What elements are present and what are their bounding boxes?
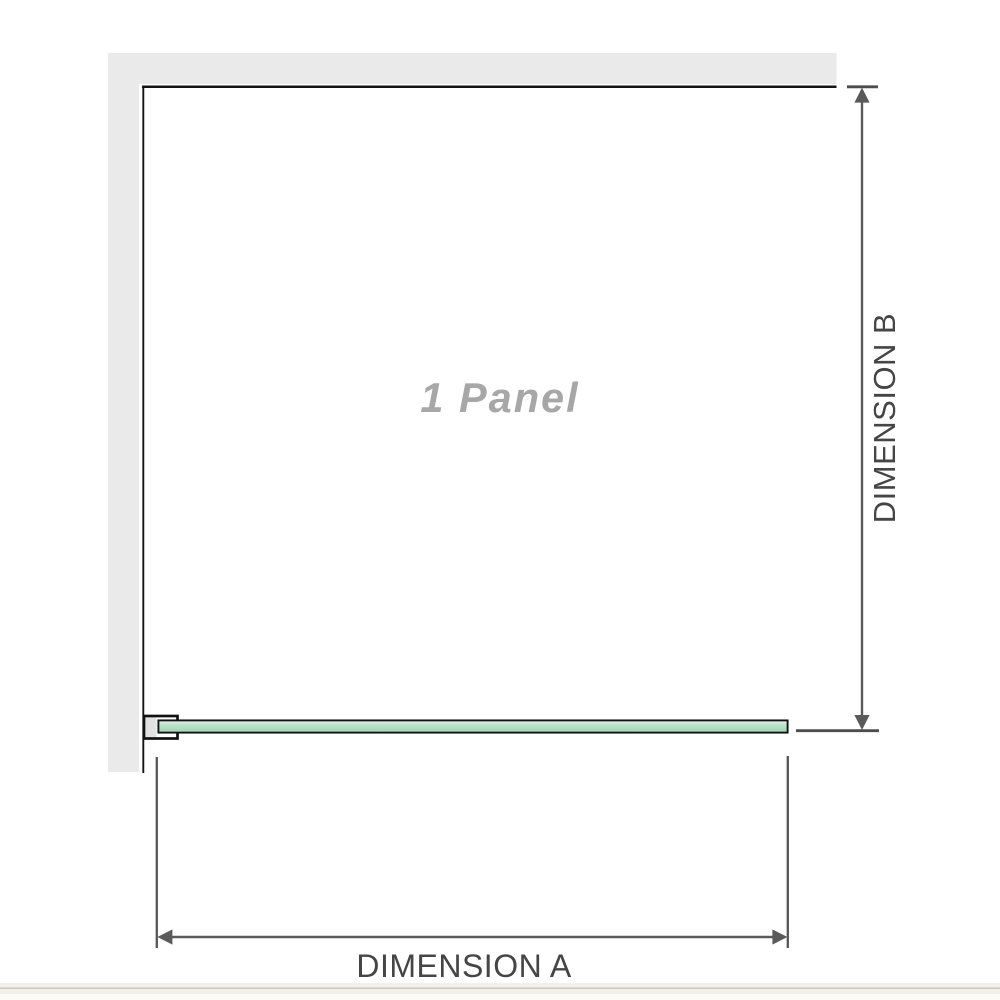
svg-text:DIMENSION B: DIMENSION B [867, 313, 902, 523]
svg-text:DIMENSION A: DIMENSION A [356, 948, 571, 984]
svg-text:1 Panel: 1 Panel [420, 374, 579, 421]
